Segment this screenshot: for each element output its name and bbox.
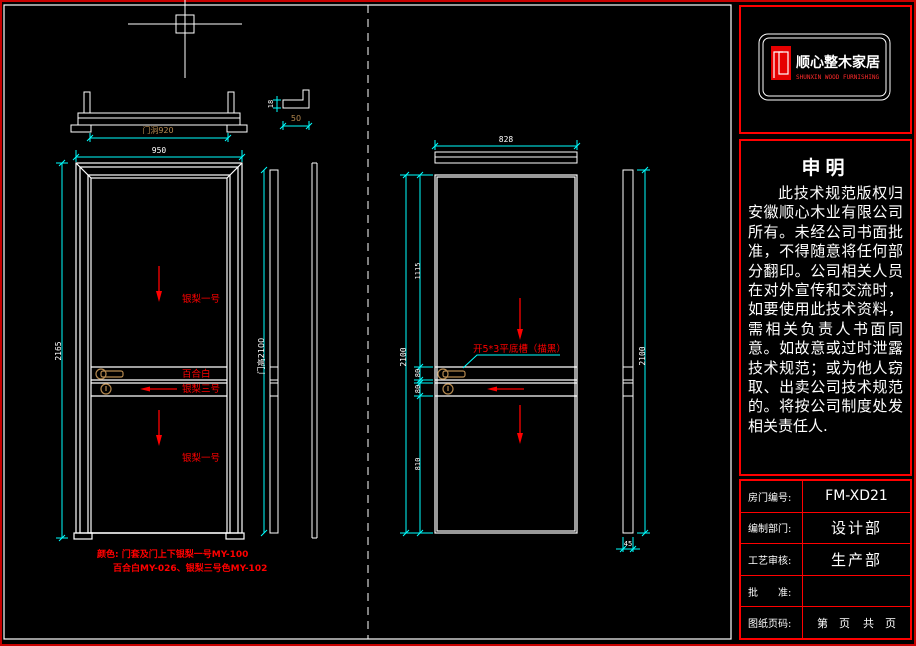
value-door-code: FM-XD21 [803,481,910,512]
page-number-left: 第 页 [817,615,850,631]
dim-hole-width: 门洞920 [142,125,173,135]
table-row-design-dept: 编制部门: 设计部 [741,513,910,545]
dim-side-height: 2100 [638,346,647,365]
table-row-page: 图纸页码: 第 页 共 页 [741,607,910,638]
dim-top-panel: 1115 [414,263,422,280]
table-row-door-code: 房门编号: FM-XD21 [741,481,910,513]
dim-door-height: 门高2100 [256,338,266,374]
back-edge-view [623,170,633,533]
color-note-line1: 颜色: 门套及门上下银梨一号MY-100 [97,548,248,560]
groove-leader-line [463,355,560,368]
value-approval [803,576,910,607]
label-lock-rail: 百合白 [182,368,211,380]
table-row-process-audit: 工艺审核: 生产部 [741,544,910,576]
declaration-box: 申明 此技术规范版权归安徽顺心木业有限公司所有。未经公司书面批准，不得随意将任何… [739,139,912,476]
label-bottom-panel: 银梨一号 [182,452,220,464]
label-design-dept: 编制部门: [741,513,803,544]
value-design-dept: 设计部 [803,513,910,544]
label-top-panel: 银梨一号 [182,293,220,305]
groove-note: 开5*3平底槽（描黑） [473,343,566,355]
door-handle-icon [96,369,123,394]
dim-width: 950 [152,146,167,155]
dim-rail2: 80 [414,385,422,393]
value-page: 第 页 共 页 [803,607,910,638]
dim-thickness: 45 [624,540,632,548]
grain-arrows [140,266,177,446]
declaration-body: 此技术规范版权归安徽顺心木业有限公司所有。未经公司书面批准，不得随意将任何部分翻… [741,184,910,436]
leaf-top-edge [435,152,577,163]
dim-profile-width: 50 [291,114,301,123]
dim-back-width: 828 [499,135,514,144]
label-process-audit: 工艺审核: [741,544,803,575]
back-view: 828 [399,135,650,552]
back-grain-arrows [487,298,524,444]
dim-bottom-panel: 810 [414,458,422,471]
door-elevation [74,163,244,539]
cad-drawing-sheet: 门洞920 950 [0,0,916,646]
label-page: 图纸页码: [741,607,803,638]
dim-profile-thickness: 18 [267,100,275,108]
dim-rail1: 80 [414,369,422,377]
dim-height: 2165 [54,341,63,360]
dim-back-height: 2100 [399,347,408,366]
crosshair-mark [128,0,242,78]
color-note-line2: 百合白MY-026、银梨三号色MY-102 [113,562,267,574]
label-door-code: 房门编号: [741,481,803,512]
value-process-audit: 生产部 [803,544,910,575]
door-edge-view [270,163,317,538]
label-mid-rail: 银梨三号 [182,383,220,395]
brand-name-cn: 顺心整木家居 [796,54,880,71]
back-handle-icon [438,369,465,394]
title-table: 房门编号: FM-XD21 编制部门: 设计部 工艺审核: 生产部 批 准: 图… [739,479,912,640]
declaration-title: 申明 [741,153,910,180]
drawing-canvas: 门洞920 950 [0,0,737,646]
dim-profile-lines [273,96,312,130]
page-number-right: 共 页 [863,615,896,631]
logo-box: 顺心整木家居 SHUNXIN WOOD FURNISHING [739,5,912,134]
logo-graphic: 顺心整木家居 SHUNXIN WOOD FURNISHING [741,7,910,132]
label-approval: 批 准: [741,576,803,607]
table-row-approval: 批 准: [741,576,910,608]
front-view: 门洞920 950 [54,90,317,574]
architrave-profile [283,90,309,108]
brand-name-en: SHUNXIN WOOD FURNISHING [796,74,879,81]
